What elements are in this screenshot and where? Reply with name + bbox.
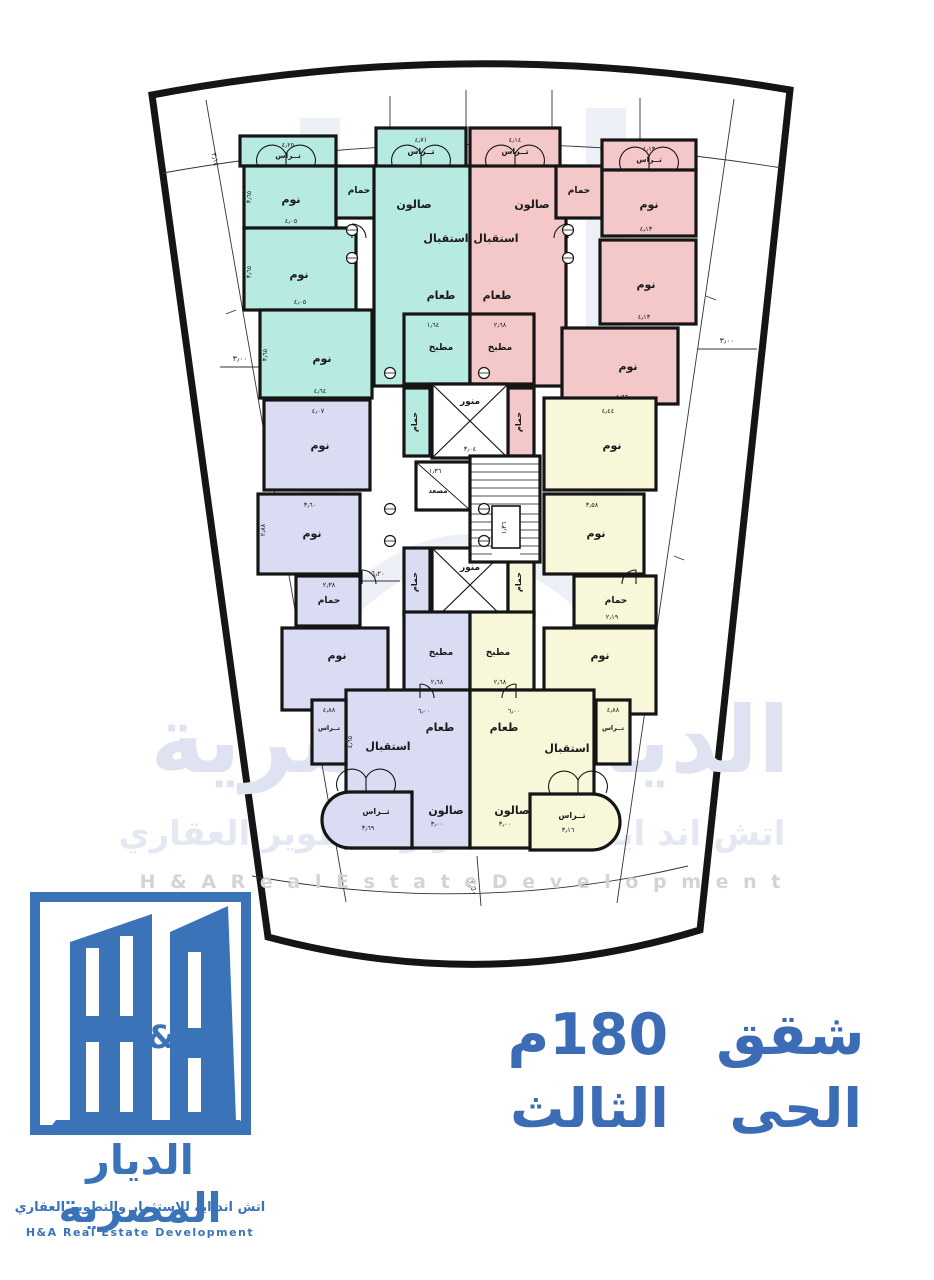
room-dim-y_bed1: ٤٫٤٤: [602, 407, 615, 415]
room-label-c_ham_br: حمام: [514, 572, 523, 592]
room-t_kitchen: مطبخ١٫٦٤: [404, 314, 470, 384]
room-label-c_lw2: منور: [459, 563, 480, 573]
room-label-y_ham: حمام: [605, 596, 628, 606]
room-dim-y_kitchen: ٢٫٦٨: [494, 678, 507, 686]
room-label-t_dining: طعام: [427, 289, 456, 302]
room-dim-l_kitchen: ٢٫٦٨: [431, 678, 444, 686]
room-p_bed1: نوم٤٫١٣: [602, 170, 696, 236]
room-p_reception: استقبال: [473, 232, 518, 245]
room-p_dining: طعام: [483, 289, 512, 302]
room-dim-p_kitchen: ٢٫٦٨: [494, 321, 507, 329]
room-t_bed2: نوم٤٫٠٥٣٫٦٥: [244, 228, 356, 310]
room-t_dining: طعام: [427, 289, 456, 302]
room-l_bed1: نوم٤٫٠٧: [264, 400, 370, 490]
room-dim-p_bed2: ٤٫١٣: [638, 313, 651, 321]
room-vdim-t_bed3: ٣٫٦٥: [261, 348, 269, 361]
room-p_ham1: حمام: [556, 166, 602, 218]
room-dim-y_salon: ٣٫٠٠: [499, 820, 512, 828]
room-label-c_lw1: منور: [459, 397, 480, 407]
room-c_ham_bl: حمام: [404, 548, 430, 616]
logo-buildings-icon: &: [46, 906, 250, 1133]
page: { "title": { "line1": "شقق 180م", "line2…: [0, 0, 934, 1280]
room-vdim-l_bed2: ٢٫٨٨: [259, 523, 267, 536]
room-label-l_reception: استقبال: [365, 740, 410, 753]
room-label-y_bed2: نوم: [586, 527, 605, 540]
room-dim-c_elev: ١٫٣٦: [429, 467, 442, 475]
room-p_salon: صالون: [514, 198, 549, 211]
room-label-c_ham_tr: حمام: [514, 412, 523, 432]
room-label-t_bed2: نوم: [289, 268, 308, 281]
room-dim-t_bed2: ٤٫٠٥: [294, 298, 307, 306]
room-label-l_bed3: نوم: [327, 649, 346, 662]
room-dim-y_ter_round: ٣٫١٦: [562, 826, 575, 834]
room-dim-t_ter2: ٤٫٧١: [415, 136, 428, 144]
title-apartment-size: شقق 180م: [452, 1004, 920, 1067]
hall-width-dim: ٦٫٢٠: [371, 570, 385, 578]
room-dim-t_bed1: ٤٫٠٥: [285, 217, 298, 225]
setback-right-dim: ٣٫٠٠: [720, 336, 735, 345]
room-t_salon: صالون: [396, 198, 431, 211]
room-label-c_ham_bl: حمام: [410, 572, 419, 592]
room-c_ham_tl: حمام: [404, 388, 430, 456]
company-logo: &: [28, 890, 258, 1140]
room-dim-t_bed3: ٤٫٦٤: [314, 387, 327, 395]
logo-company-name-en: H&A Real Estate Development: [24, 1226, 256, 1239]
room-dim-y_ter_side: ٤٫٨٨: [607, 706, 620, 714]
room-label-p_bed2: نوم: [636, 278, 655, 291]
room-dim-t_ter1: ٤٫٢٥: [282, 141, 295, 149]
logo-company-name-ar: الديار المصرية: [24, 1136, 256, 1232]
room-label-y_reception: استقبال: [544, 742, 589, 755]
room-label-t_bed3: نوم: [312, 352, 331, 365]
room-dim-y_ham: ٢٫١٩: [606, 613, 619, 621]
room-label-t_ter1: تــراس: [275, 151, 301, 160]
room-t_bed1: نوم٤٫٠٥٣٫٦٥: [244, 166, 336, 228]
room-dim-l_ter_side: ٤٫٨٨: [323, 706, 336, 714]
room-c_elev: مصعد١٫٣٦: [416, 462, 470, 510]
room-label-c_elev: مصعد: [428, 487, 447, 495]
room-l_ter_side: تــراس٤٫٨٨: [312, 700, 346, 764]
room-y_bed2: نوم٣٫٥٨: [544, 494, 644, 574]
room-label-p_kitchen: مطبخ: [488, 343, 513, 353]
room-dim-c_lw1: ٣٫٠٤: [464, 445, 477, 453]
room-p_bed3: نوم٤٫٦٦: [562, 328, 678, 404]
room-y_reception: استقبال: [544, 742, 589, 755]
room-label-t_salon: صالون: [396, 198, 431, 211]
room-dim-y_bed2: ٣٫٥٨: [586, 501, 599, 509]
setback-left-dim: ٣٫٠٠: [233, 354, 248, 363]
room-t_bed3: نوم٤٫٦٤٣٫٦٥: [260, 310, 372, 398]
room-label-p_bed1: نوم: [639, 198, 658, 211]
room-dim-p_ter2: ٤٫١٣: [643, 145, 656, 153]
room-y_ter_round: تــراس٣٫١٦: [530, 794, 620, 850]
room-c_lw1: منور٣٫٠٤: [432, 384, 508, 458]
room-l_ham: حمام٢٫٣٨: [296, 576, 360, 626]
room-label-p_dining: طعام: [483, 289, 512, 302]
room-y_ter_side: تــراس٤٫٨٨: [596, 700, 630, 764]
room-label-y_bed1: نوم: [602, 439, 621, 452]
room-label-y_kitchen: مطبخ: [486, 648, 511, 658]
room-label-t_kitchen: مطبخ: [429, 343, 454, 353]
room-label-y_ter_round: تــراس: [558, 811, 585, 821]
room-l_ter_round: تــراس٣٫٦٩: [322, 792, 412, 848]
room-label-l_kitchen: مطبخ: [429, 648, 454, 658]
room-label-y_bed3: نوم: [590, 649, 609, 662]
title-district: الحى الثالث: [452, 1079, 920, 1138]
room-label-p_bed3: نوم: [618, 360, 637, 373]
room-label-y_salon: صالون: [494, 804, 529, 817]
room-label-t_bed1: نوم: [281, 193, 300, 206]
room-dim-p_bed1: ٤٫١٣: [640, 225, 653, 233]
logo-ampersand: &: [147, 1018, 175, 1056]
room-l_bed2: نوم٣٫٦٠٢٫٨٨: [258, 494, 360, 574]
room-dim-p_ter1: ٤٫١٤: [509, 136, 522, 144]
room-y_ham: حمام٢٫١٩: [574, 576, 656, 626]
room-label-l_dining: طعام: [426, 721, 455, 734]
room-dim-y_dining: ٦٫٠٠: [508, 707, 521, 715]
room-label-p_reception: استقبال: [473, 232, 518, 245]
room-dim-l_bed2: ٣٫٦٠: [304, 501, 317, 509]
room-label-t_reception: استقبال: [423, 232, 468, 245]
room-y_kitchen: مطبخ٢٫٦٨: [470, 612, 534, 690]
room-c_ham_tr: حمام: [508, 388, 534, 456]
room-l_kitchen: مطبخ٢٫٦٨: [404, 612, 470, 690]
room-vdim-t_bed1: ٣٫٦٥: [245, 190, 253, 203]
room-label-y_ter_side: تــراس: [602, 724, 624, 732]
room-label-l_bed2: نوم: [302, 527, 321, 540]
logo-mark: &: [28, 890, 258, 1140]
room-label-l_salon: صالون: [428, 804, 463, 817]
room-label-l_ter_round: تــراس: [362, 807, 389, 817]
stair-width-dim: ١٫٣٦: [500, 521, 508, 534]
room-label-p_ham1: حمام: [568, 186, 591, 196]
room-y_bed1: نوم٤٫٤٤: [544, 398, 656, 490]
room-label-l_bed1: نوم: [310, 439, 329, 452]
room-l_reception: استقبال: [365, 740, 410, 753]
room-dim-l_dining: ٦٫٠٠: [418, 707, 431, 715]
room-dim-t_kitchen: ١٫٦٤: [427, 321, 440, 329]
room-vdim-t_bed2: ٣٫٦٥: [245, 265, 253, 278]
room-p_bed2: نوم٤٫١٣: [600, 240, 696, 324]
floor-plan: الديار المصرية اتش اند ايه للاستثمار و ا…: [0, 0, 934, 985]
room-label-t_ham1: حمام: [348, 186, 371, 196]
room-dim-l_ter_round: ٣٫٦٩: [362, 824, 375, 832]
logo-tagline-ar: اتش اند ايه للإستثمار والتطوير العقاري: [14, 1200, 266, 1215]
reception-height-dim: ٤٫٦٥: [346, 735, 354, 748]
room-label-l_ter_side: تــراس: [318, 724, 340, 732]
room-label-p_salon: صالون: [514, 198, 549, 211]
room-label-y_dining: طعام: [490, 721, 519, 734]
room-dim-l_bed1: ٤٫٠٧: [312, 407, 325, 415]
room-t_reception: استقبال: [423, 232, 468, 245]
room-label-l_ham: حمام: [318, 596, 341, 606]
room-label-c_ham_tl: حمام: [410, 412, 419, 432]
room-dim-l_ham: ٢٫٣٨: [323, 581, 336, 589]
room-dim-l_salon: ٣٫٠٠: [431, 820, 444, 828]
drawing-title: شقق 180م الحى الثالث: [452, 1004, 920, 1138]
